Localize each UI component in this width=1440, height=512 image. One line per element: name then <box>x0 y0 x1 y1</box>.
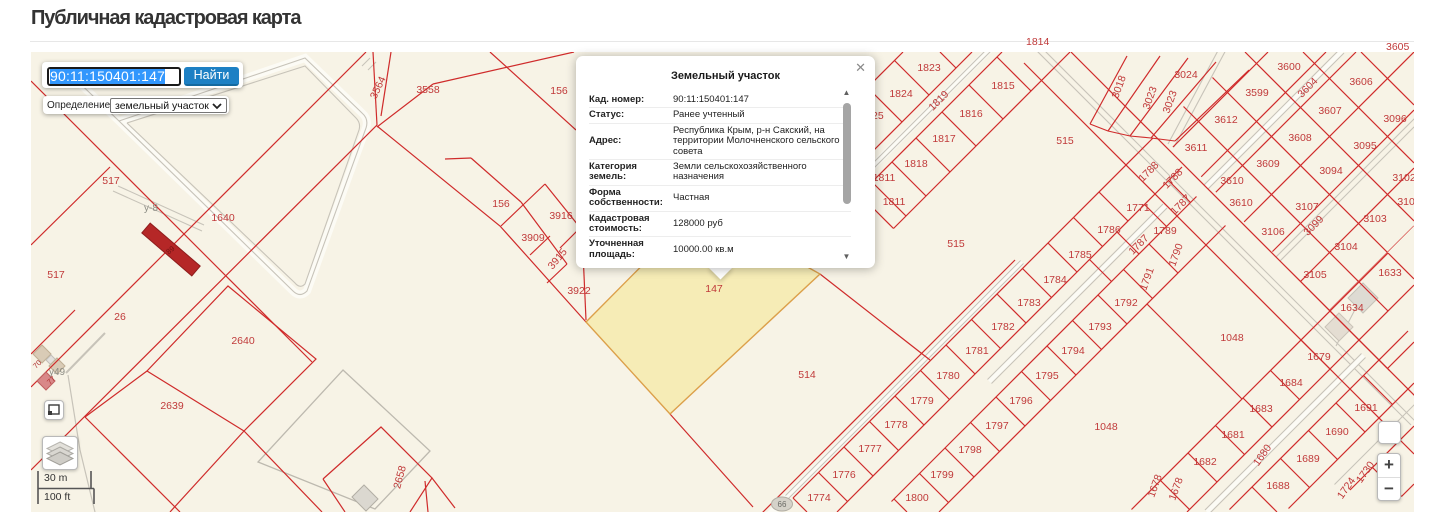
svg-text:1799: 1799 <box>930 469 954 481</box>
svg-text:3106: 3106 <box>1261 226 1285 238</box>
svg-text:3600: 3600 <box>1277 61 1301 73</box>
svg-text:1688: 1688 <box>1266 480 1290 492</box>
svg-text:1679: 1679 <box>1307 351 1331 363</box>
svg-text:1816: 1816 <box>959 108 983 120</box>
svg-text:3018: 3018 <box>1110 74 1129 100</box>
svg-text:2640: 2640 <box>231 335 255 347</box>
svg-text:3104: 3104 <box>1334 241 1358 253</box>
svg-text:1800: 1800 <box>905 492 929 504</box>
svg-text:3102: 3102 <box>1392 172 1414 184</box>
svg-text:147: 147 <box>705 283 723 295</box>
svg-text:1682: 1682 <box>1193 456 1217 468</box>
svg-text:3107: 3107 <box>1295 201 1319 213</box>
svg-text:1793: 1793 <box>1088 321 1112 333</box>
svg-text:3909: 3909 <box>521 232 545 244</box>
svg-text:66: 66 <box>778 500 787 509</box>
svg-text:3024: 3024 <box>1174 69 1198 81</box>
svg-text:2658: 2658 <box>391 464 409 490</box>
svg-text:1681: 1681 <box>1221 429 1245 441</box>
svg-text:1691: 1691 <box>1354 402 1378 414</box>
svg-text:1678: 1678 <box>1146 473 1165 499</box>
svg-text:3105: 3105 <box>1303 269 1327 281</box>
svg-text:514: 514 <box>798 369 816 381</box>
svg-text:3915: 3915 <box>546 246 570 272</box>
svg-text:1824: 1824 <box>889 88 913 100</box>
svg-text:1780: 1780 <box>936 370 960 382</box>
svg-text:517: 517 <box>47 269 65 281</box>
svg-text:1790: 1790 <box>1167 242 1186 268</box>
svg-text:1797: 1797 <box>985 420 1009 432</box>
svg-text:3099: 3099 <box>1301 213 1326 238</box>
svg-text:3609: 3609 <box>1256 158 1280 170</box>
svg-text:1817: 1817 <box>932 133 956 145</box>
svg-text:1818: 1818 <box>904 158 928 170</box>
svg-text:3608: 3608 <box>1288 132 1312 144</box>
svg-text:1634: 1634 <box>1340 302 1364 314</box>
svg-text:1785: 1785 <box>1068 249 1092 261</box>
svg-text:3922: 3922 <box>567 285 591 297</box>
svg-text:3612: 3612 <box>1214 114 1238 126</box>
svg-text:3606: 3606 <box>1349 76 1373 88</box>
svg-text:1683: 1683 <box>1249 403 1273 415</box>
svg-text:1798: 1798 <box>958 444 982 456</box>
svg-text:3095: 3095 <box>1353 140 1377 152</box>
svg-text:1796: 1796 <box>1009 395 1033 407</box>
svg-text:1771: 1771 <box>1126 202 1150 214</box>
svg-text:3096: 3096 <box>1383 113 1407 125</box>
svg-text:1690: 1690 <box>1325 426 1349 438</box>
svg-text:1781: 1781 <box>965 345 989 357</box>
svg-text:3103: 3103 <box>1363 213 1387 225</box>
svg-text:1774: 1774 <box>807 492 831 504</box>
svg-text:1815: 1815 <box>991 80 1015 92</box>
svg-text:3607: 3607 <box>1318 105 1342 117</box>
svg-text:1811: 1811 <box>873 172 896 184</box>
svg-text:1795: 1795 <box>1035 370 1059 382</box>
svg-text:1779: 1779 <box>910 395 934 407</box>
svg-text:1782: 1782 <box>991 321 1015 333</box>
svg-text:1823: 1823 <box>917 62 941 74</box>
svg-text:3599: 3599 <box>1245 87 1269 99</box>
svg-text:3023: 3023 <box>1141 85 1160 111</box>
svg-text:1811: 1811 <box>883 196 906 208</box>
svg-text:1678: 1678 <box>1167 476 1186 502</box>
svg-text:156: 156 <box>492 198 510 210</box>
svg-text:1783: 1783 <box>1017 297 1041 309</box>
svg-text:26: 26 <box>114 311 126 323</box>
svg-text:1048: 1048 <box>1094 421 1118 433</box>
svg-text:3611: 3611 <box>1185 142 1208 154</box>
svg-text:515: 515 <box>947 238 965 250</box>
svg-text:3610: 3610 <box>1220 175 1244 187</box>
svg-text:1684: 1684 <box>1279 377 1303 389</box>
svg-text:1689: 1689 <box>1296 453 1320 465</box>
svg-text:1048: 1048 <box>1220 332 1244 344</box>
svg-text:1640: 1640 <box>211 212 235 224</box>
svg-text:156: 156 <box>550 85 568 97</box>
svg-text:3101: 3101 <box>1397 196 1414 208</box>
svg-text:1786: 1786 <box>1097 224 1121 236</box>
svg-text:1777: 1777 <box>858 443 882 455</box>
svg-text:1789: 1789 <box>1153 225 1177 237</box>
svg-text:1730: 1730 <box>1354 459 1377 485</box>
svg-text:1633: 1633 <box>1378 267 1402 279</box>
svg-text:1778: 1778 <box>884 419 908 431</box>
svg-text:у-8: у-8 <box>144 203 158 214</box>
svg-text:1791: 1791 <box>1138 266 1157 292</box>
svg-text:3023: 3023 <box>1161 89 1180 115</box>
svg-text:3558: 3558 <box>416 84 440 96</box>
svg-text:2639: 2639 <box>160 400 184 412</box>
svg-text:3916: 3916 <box>549 210 573 222</box>
svg-text:515: 515 <box>1056 135 1074 147</box>
svg-text:517: 517 <box>102 175 120 187</box>
svg-text:1792: 1792 <box>1114 297 1138 309</box>
svg-text:1776: 1776 <box>832 469 856 481</box>
svg-text:3094: 3094 <box>1319 165 1343 177</box>
svg-text:3610: 3610 <box>1229 197 1253 209</box>
svg-text:1794: 1794 <box>1061 345 1085 357</box>
svg-text:1784: 1784 <box>1043 274 1067 286</box>
